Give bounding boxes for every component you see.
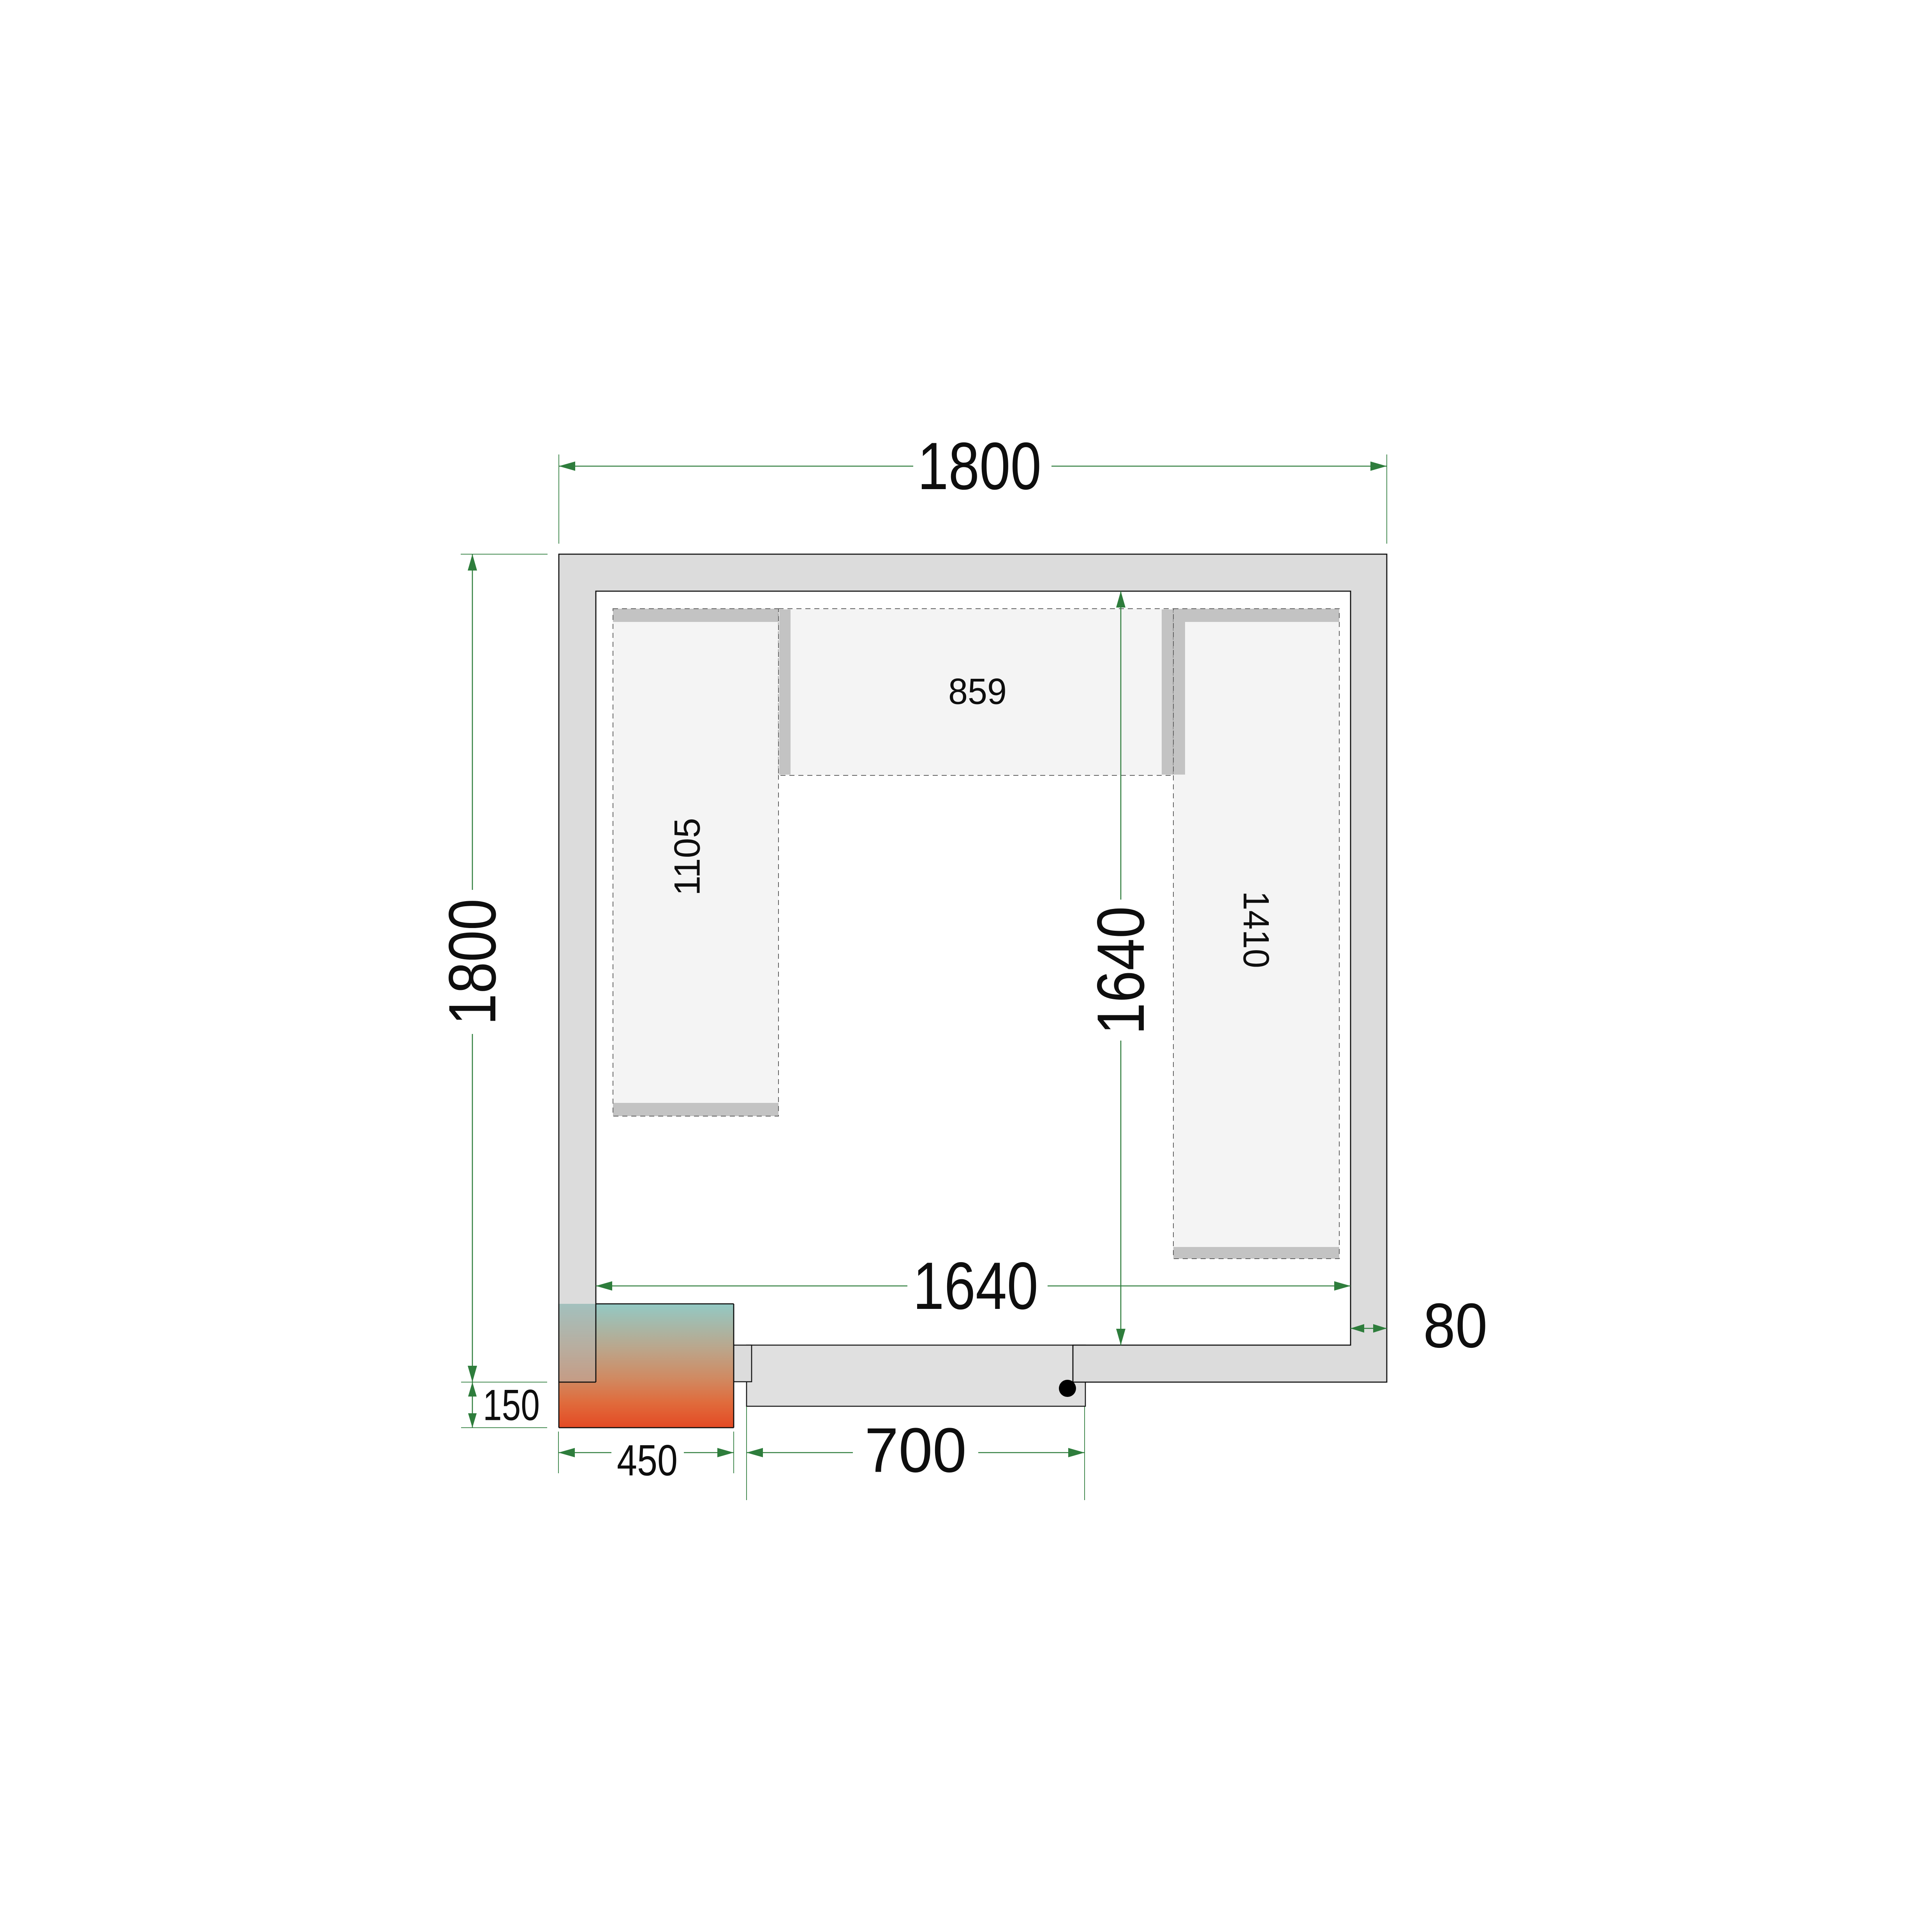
svg-text:1105: 1105 xyxy=(667,818,708,896)
svg-text:700: 700 xyxy=(865,1415,967,1486)
svg-text:150: 150 xyxy=(483,1381,540,1430)
svg-text:1410: 1410 xyxy=(1236,891,1277,968)
svg-text:1800: 1800 xyxy=(435,899,510,1025)
svg-text:1800: 1800 xyxy=(918,429,1041,504)
svg-text:1640: 1640 xyxy=(1083,906,1158,1035)
svg-text:450: 450 xyxy=(617,1436,678,1485)
svg-text:80: 80 xyxy=(1423,1291,1488,1361)
svg-text:859: 859 xyxy=(948,671,1007,712)
svg-text:1640: 1640 xyxy=(913,1249,1038,1323)
